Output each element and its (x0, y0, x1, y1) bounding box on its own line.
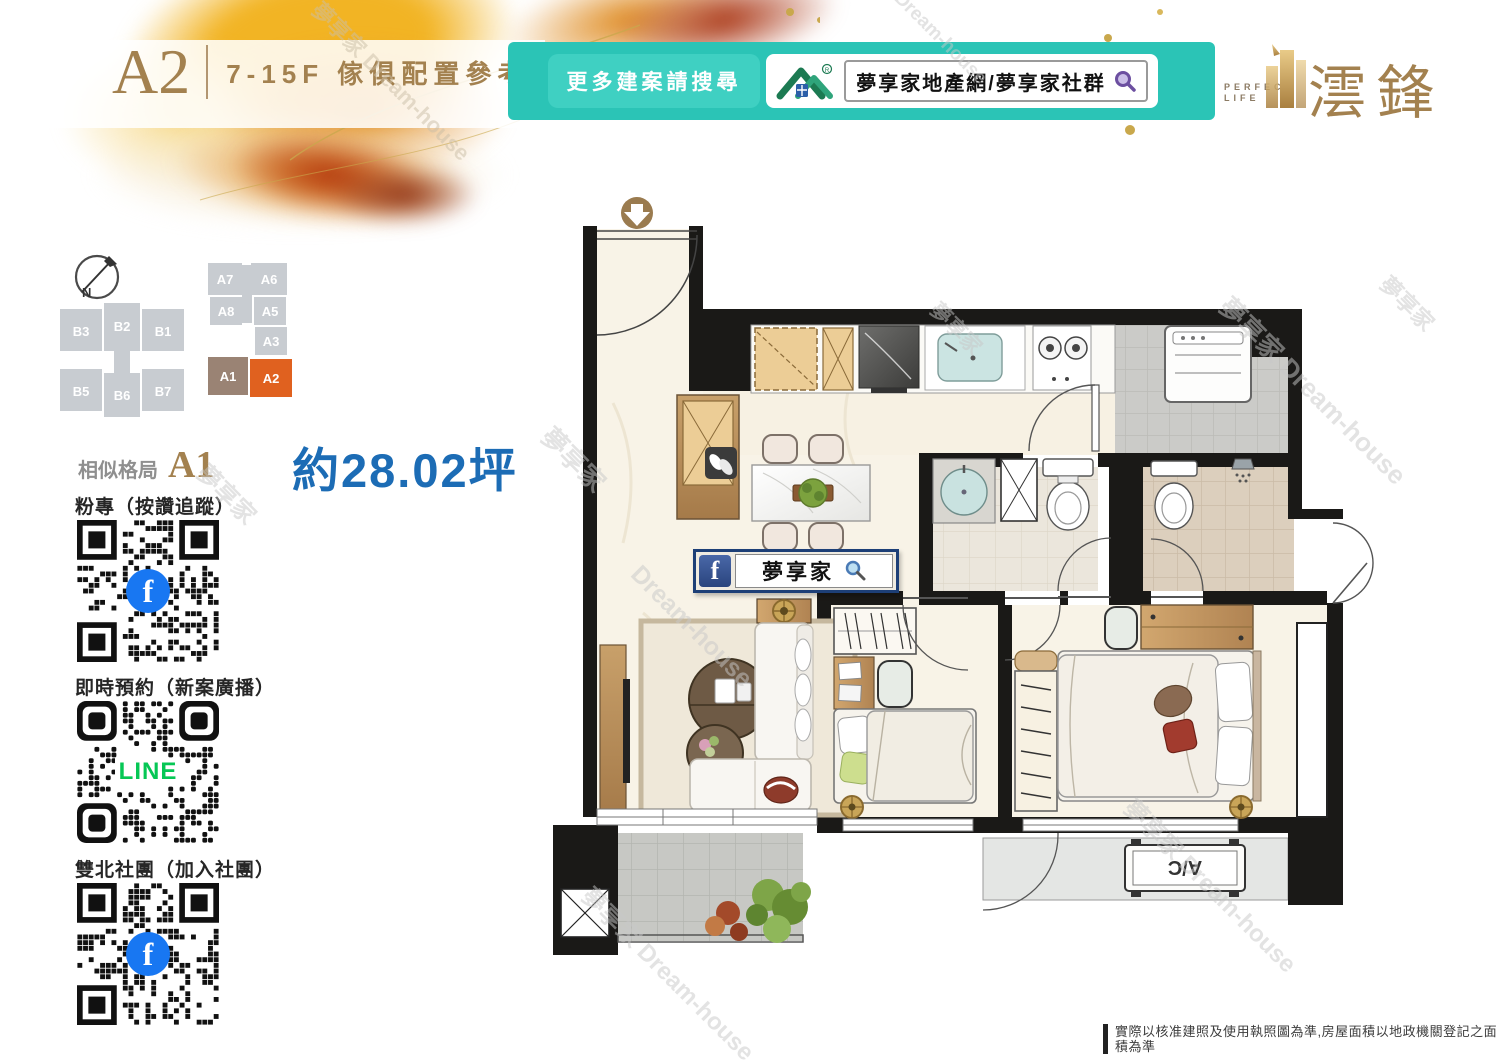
tv-cabinet (600, 645, 630, 817)
kitchen-cabinet-x (823, 328, 853, 390)
facebook-search-input[interactable]: 夢享家 (735, 554, 893, 588)
side-exterior-door (1327, 523, 1373, 603)
title-divider (206, 45, 208, 99)
toilet-1 (1043, 459, 1093, 530)
desk-chair-2 (878, 661, 912, 707)
double-bed (1058, 651, 1261, 801)
banner-label: 更多建案請搜尋 (548, 54, 760, 108)
unit-title: A2 7-15F 傢俱配置參考圖 (112, 40, 561, 104)
kitchen-cabinet-dashed (755, 328, 817, 390)
kitchen-sink (925, 326, 1025, 390)
ac-label: A/C (1168, 856, 1202, 878)
qr-label-line: 即時預約（新案廣播） (75, 673, 275, 700)
keyplan: N B3 B2 B1 B5 B6 B7 A7 A6 (58, 243, 308, 428)
qr-label-facebook-group: 雙北社團（加入社團） (75, 855, 275, 882)
svg-text:B5: B5 (73, 384, 90, 399)
facebook-icon: f (126, 932, 170, 976)
kitchen-counter (751, 325, 1115, 393)
pipe-shaft (1001, 459, 1037, 521)
svg-text:B7: B7 (155, 384, 172, 399)
compass-icon: N (76, 256, 118, 300)
qr-code-facebook-page[interactable]: f (77, 520, 219, 662)
svg-text:A2: A2 (263, 371, 280, 386)
area-size: 約28.02坪 (292, 432, 518, 501)
floor-lamp-icon (841, 796, 863, 818)
svg-text:B6: B6 (114, 388, 131, 403)
svg-text:A5: A5 (262, 304, 279, 319)
svg-text:A1: A1 (220, 369, 237, 384)
floor-lamp-icon (1230, 796, 1252, 818)
keyplan-building-a: A7 A6 A8 A5 A3 A1 A2 (208, 263, 292, 397)
svg-text:B2: B2 (114, 319, 131, 334)
dreamhouse-logo-icon: R (774, 56, 836, 106)
qr-label-facebook-page: 粉專（按讚追蹤） (75, 492, 235, 519)
search-banner: 更多建案請搜尋 R 夢享家地產網/夢享家社群 (508, 42, 1215, 120)
qr-code-line[interactable]: LINE (77, 701, 219, 843)
svg-text:A7: A7 (217, 272, 234, 287)
banner-search-panel: R 夢享家地產網/夢享家社群 (766, 54, 1158, 108)
kitchen-counter-dark (859, 326, 919, 393)
closet-column (1297, 623, 1327, 817)
wardrobe-master (1015, 651, 1057, 811)
single-bed (834, 709, 976, 803)
dining-table (752, 465, 870, 521)
toilet-2 (1151, 461, 1197, 529)
floor-lamp-icon (773, 600, 795, 622)
disclaimer: 實際以核准建照及使用執照圖為準,房屋面積以地政機關登記之面積為準 (1103, 1024, 1500, 1054)
slippers-icon (705, 447, 737, 479)
similar-unit: A1 (168, 443, 214, 487)
similar-label: 相似格局 (78, 454, 158, 483)
entry-arrow-icon (621, 197, 653, 229)
ac-ledge: A/C (1125, 839, 1245, 897)
stove (1033, 326, 1091, 390)
accent-pillow (764, 777, 798, 803)
banner-search-input[interactable]: 夢享家地產網/夢享家社群 (844, 60, 1148, 102)
facebook-search-bar[interactable]: f 夢享家 (693, 549, 899, 593)
unit-code: A2 (112, 40, 190, 104)
qr-code-facebook-group[interactable]: f (77, 883, 219, 1025)
desk-2 (834, 657, 874, 709)
svg-text:A3: A3 (263, 334, 280, 349)
keyplan-building-b: B3 B2 B1 B5 B6 B7 (60, 303, 184, 417)
facebook-icon: f (699, 555, 731, 587)
svg-text:N: N (82, 285, 91, 300)
svg-text:B1: B1 (155, 324, 172, 339)
floorplan: A/C (553, 193, 1393, 975)
svg-text:R: R (825, 68, 830, 74)
banner-search-text: 夢享家地產網/夢享家社群 (856, 67, 1106, 96)
search-icon (1114, 70, 1136, 92)
facebook-search-text: 夢享家 (762, 556, 834, 586)
facebook-icon: f (126, 569, 170, 613)
tv (623, 679, 630, 783)
svg-text:A6: A6 (261, 272, 278, 287)
dresser (1141, 605, 1253, 649)
brand-building-icon (1262, 42, 1308, 114)
svg-text:A8: A8 (218, 304, 235, 319)
bathroom-sink (933, 459, 995, 523)
vanity-chair (1105, 607, 1137, 649)
line-icon: LINE (115, 758, 181, 786)
svg-text:B3: B3 (73, 324, 90, 339)
search-icon (844, 560, 866, 582)
flyer-page: A2 7-15F 傢俱配置參考圖 更多建案請搜尋 R 夢享家地產網/夢享家社群 (0, 0, 1500, 1060)
brand-name: 澐鋒 (1308, 46, 1444, 130)
similar-layout: 相似格局 A1 (78, 443, 214, 487)
washing-machine (1165, 326, 1251, 402)
